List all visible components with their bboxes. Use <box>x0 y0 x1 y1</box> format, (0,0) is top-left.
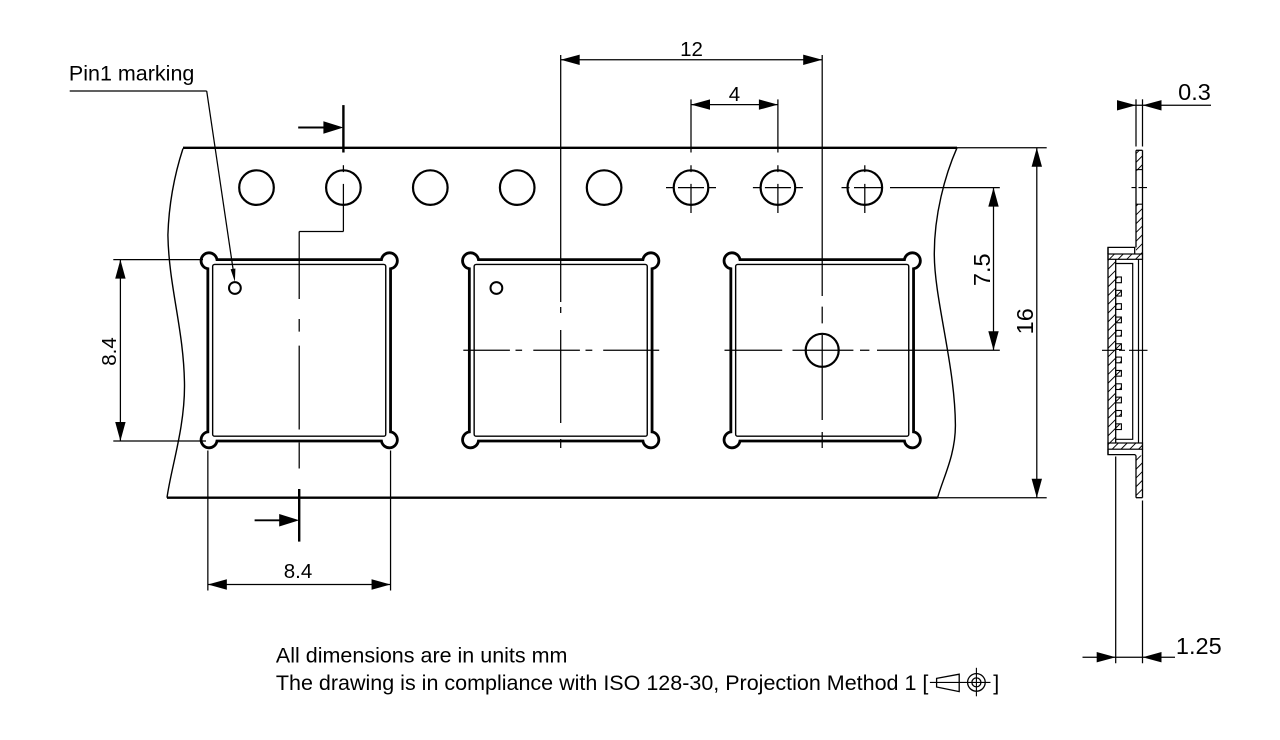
svg-text:7.5: 7.5 <box>969 253 995 286</box>
svg-text:8.4: 8.4 <box>98 337 121 366</box>
svg-text:16: 16 <box>1012 308 1038 334</box>
svg-text:8.4: 8.4 <box>284 560 313 583</box>
svg-text:Pin1 marking: Pin1 marking <box>69 62 194 86</box>
svg-text:12: 12 <box>680 38 703 61</box>
svg-text:The drawing is in compliance w: The drawing is in compliance with ISO 12… <box>276 671 929 695</box>
svg-text:]: ] <box>993 671 999 695</box>
svg-text:1.25: 1.25 <box>1176 633 1222 659</box>
svg-text:0.3: 0.3 <box>1178 79 1211 105</box>
svg-text:All dimensions are in units mm: All dimensions are in units mm <box>276 643 568 667</box>
svg-text:4: 4 <box>729 83 740 106</box>
